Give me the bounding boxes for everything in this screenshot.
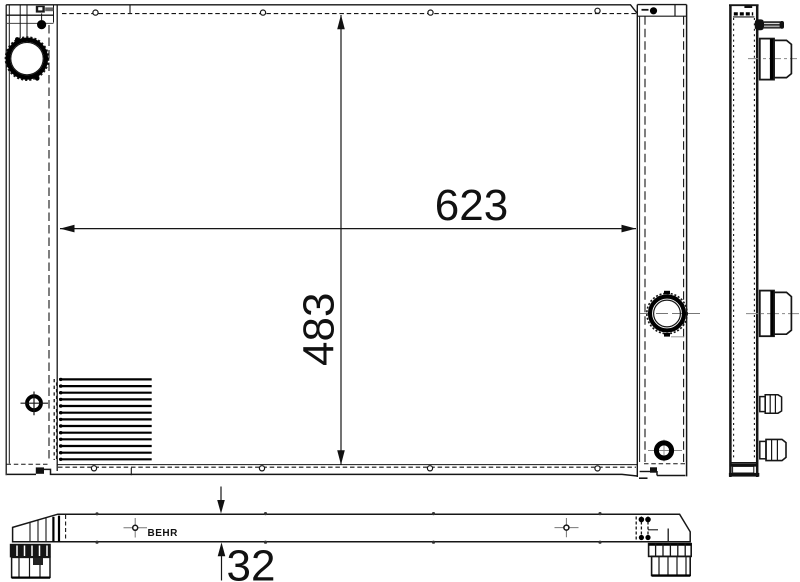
svg-text:32: 32 [227,542,276,582]
svg-text:483: 483 [295,293,344,366]
svg-text:BEHR: BEHR [148,528,179,539]
svg-text:623: 623 [435,181,508,230]
